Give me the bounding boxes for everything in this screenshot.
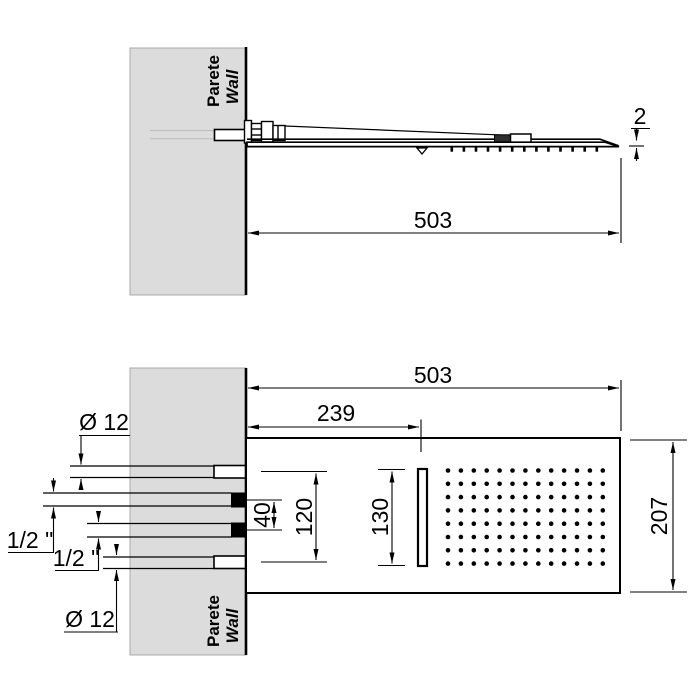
nozzle-ticks	[451, 148, 599, 152]
dim-port-span-text: 40	[249, 502, 275, 528]
dim-pipe-bottom-text: Ø 12	[65, 606, 115, 632]
dim-side-length-text: 503	[414, 207, 452, 233]
pipe-connector-bottom	[214, 556, 246, 569]
dim-slot-offset-text: 239	[317, 400, 355, 426]
dim-port-1-size: 1/2 "	[7, 478, 54, 553]
dim-supply-span-text: 120	[291, 498, 317, 536]
plan-view: 503 239 207 130 120	[7, 362, 687, 655]
waterfall-slot	[418, 469, 427, 566]
technical-drawing-page: 503 2 Parete Wall	[0, 0, 700, 700]
pipe-connector-top	[214, 466, 246, 479]
wall-label-side-wall: Wall	[223, 68, 242, 104]
dim-depth: 207	[630, 440, 687, 592]
half-inch-port-2	[231, 523, 246, 538]
half-inch-port-1	[231, 493, 246, 508]
wall-label-side-parete: Parete	[204, 55, 223, 107]
dim-plan-length: 503	[248, 362, 621, 431]
dim-port-2-size: 1/2 "	[53, 511, 100, 571]
shower-head-technical-drawing: 503 2 Parete Wall	[0, 0, 700, 700]
side-view: 503 2 Parete Wall	[130, 47, 650, 295]
dim-plan-length-text: 503	[414, 362, 452, 388]
dim-pipe-top-text: Ø 12	[79, 409, 129, 435]
dim-slot-length-text: 130	[367, 498, 393, 536]
dim-depth-text: 207	[646, 497, 672, 535]
dim-tip-thickness: 2	[629, 103, 650, 161]
dim-port-2-text: 1/2 "	[53, 545, 100, 571]
dim-port-1-text: 1/2 "	[7, 527, 54, 553]
wall-label-plan-wall: Wall	[223, 607, 242, 643]
wall-label-plan-parete: Parete	[204, 595, 223, 647]
dim-side-length: 503	[248, 158, 621, 243]
supply-pipe-stub	[215, 130, 246, 141]
waterfall-outlet-marker	[417, 148, 427, 154]
dim-tip-thickness-text: 2	[634, 103, 647, 129]
shower-plate	[247, 142, 619, 146]
